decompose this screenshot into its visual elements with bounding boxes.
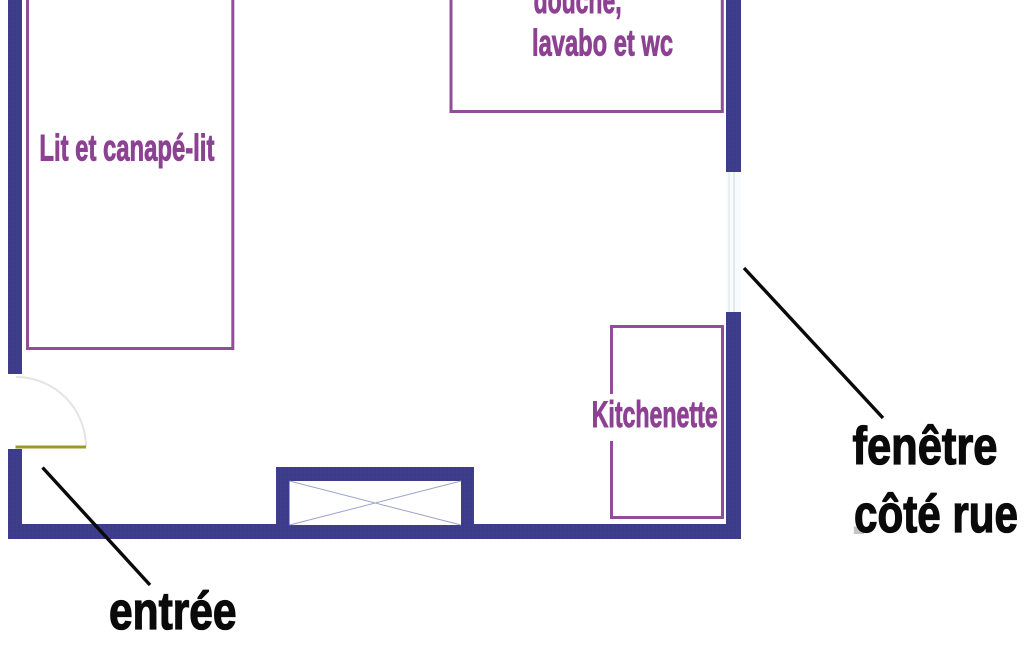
svg-text:côté rue: côté rue — [854, 485, 1018, 544]
svg-text:fenêtre: fenêtre — [853, 417, 998, 476]
svg-text:entrée: entrée — [109, 582, 237, 641]
svg-text:Kitchenette: Kitchenette — [592, 394, 718, 435]
svg-text:douche,: douche, — [534, 0, 622, 21]
svg-text:Lit et canapé-lit: Lit et canapé-lit — [39, 128, 214, 169]
svg-text:lavabo et wc: lavabo et wc — [532, 23, 673, 64]
